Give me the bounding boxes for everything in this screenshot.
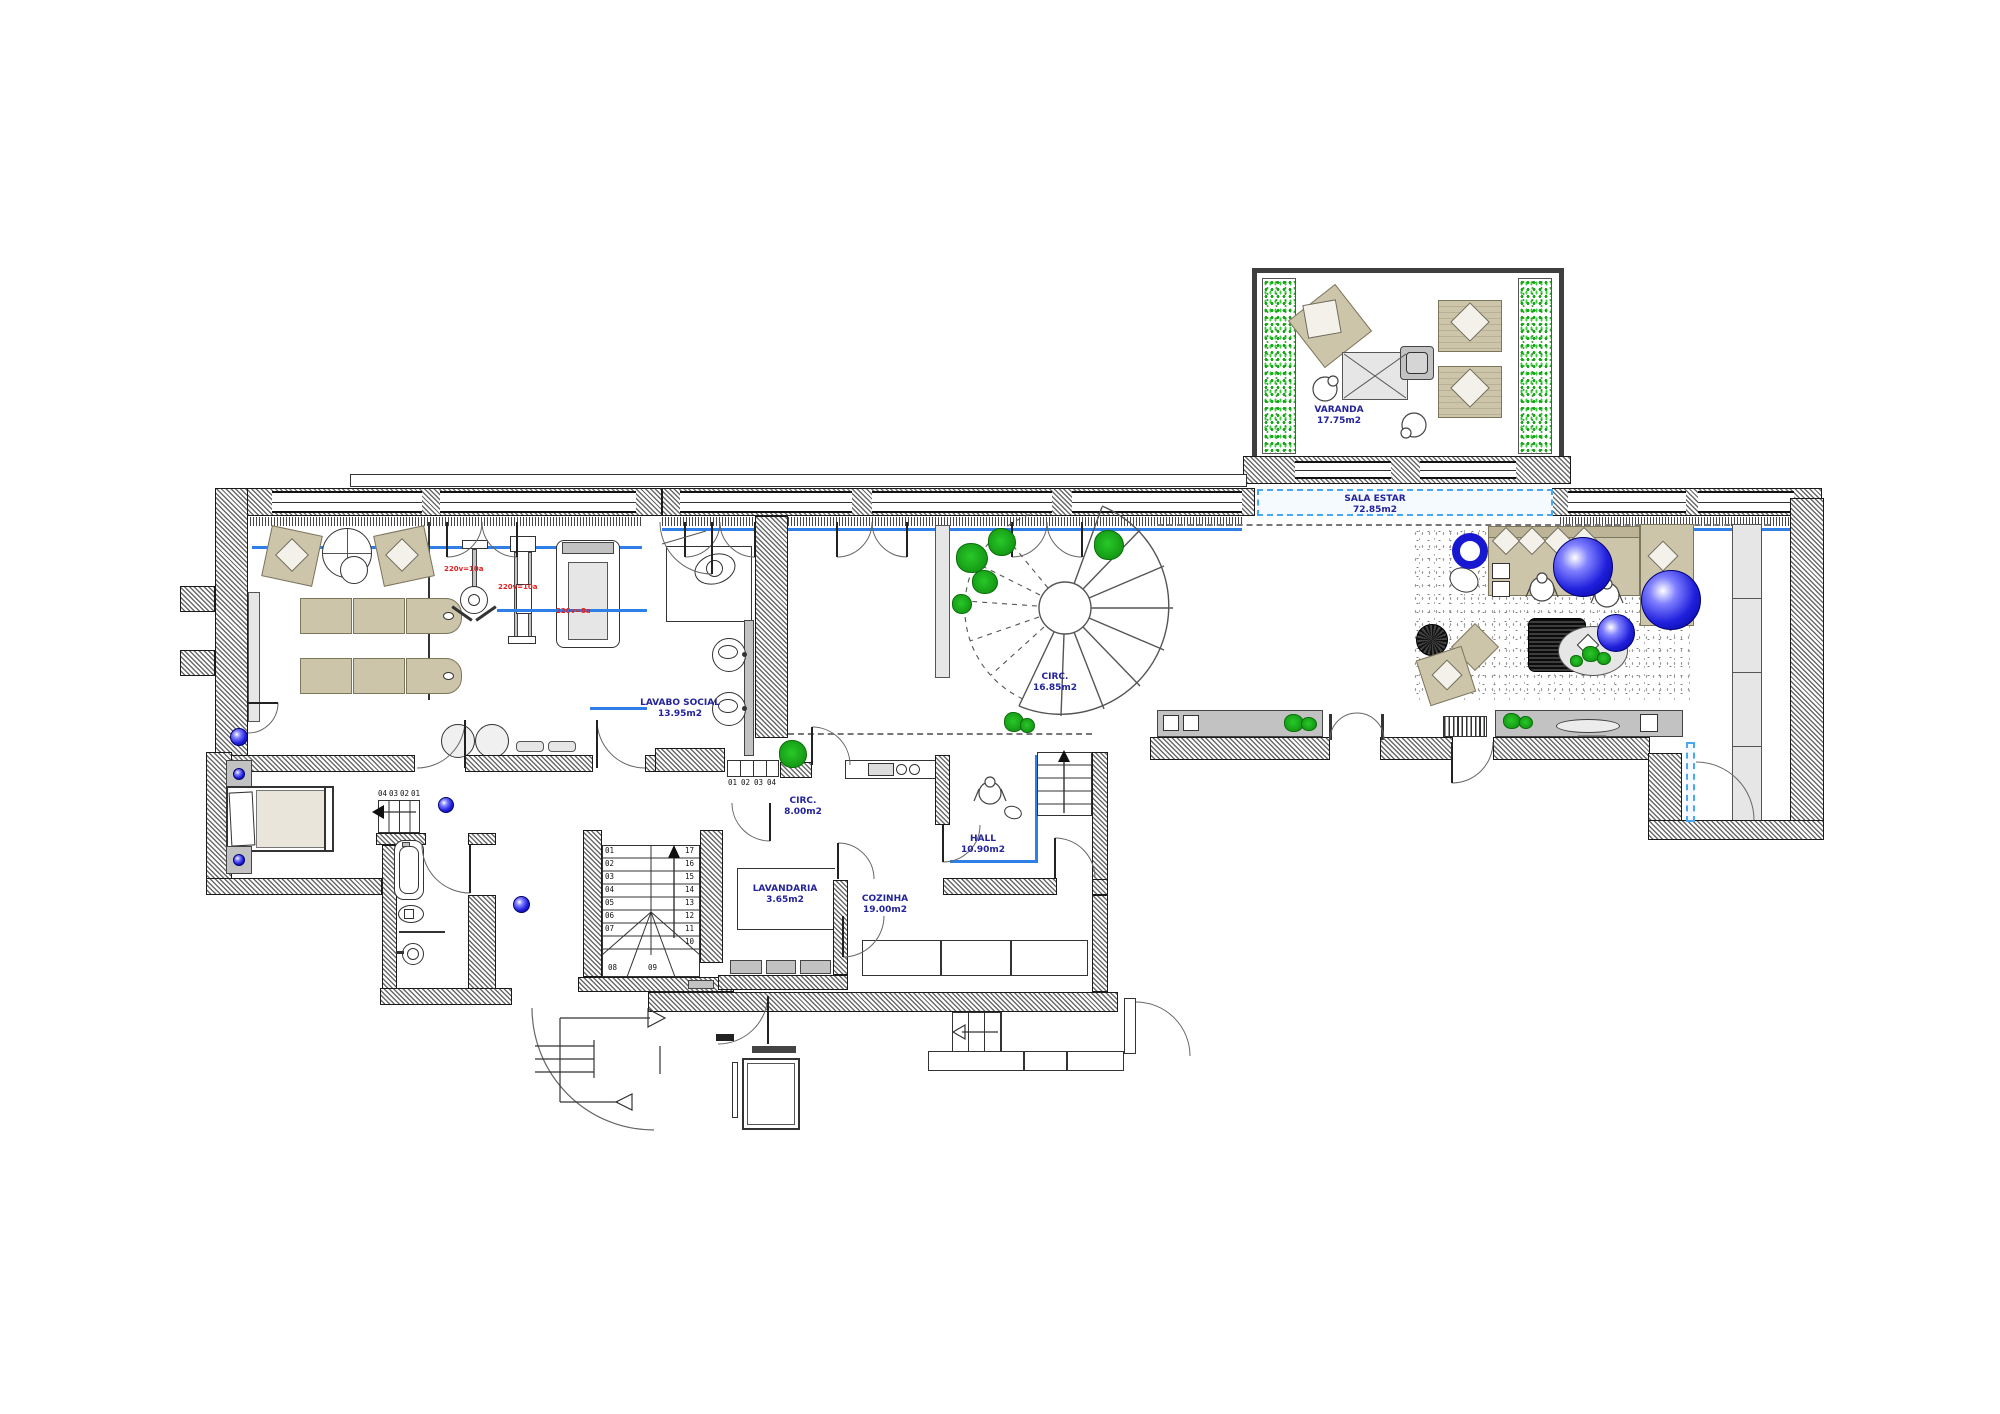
lavabo-area: 13.95m2 — [630, 709, 730, 720]
step-num: 03 — [389, 790, 398, 798]
stair-num: 02 — [605, 860, 614, 868]
hall-area: 10.90m2 — [938, 845, 1028, 856]
cozinha-area: 19.00m2 — [840, 905, 930, 916]
gym-note-1: 220v=10a — [444, 566, 484, 573]
varanda-name: VARANDA — [1289, 405, 1389, 416]
circ-hall-area: 8.00m2 — [758, 807, 848, 818]
sala-estar-name: SALA ESTAR — [1330, 494, 1420, 505]
circ-hall-label: CIRC. 8.00m2 — [758, 796, 848, 819]
wheel-ring — [1452, 533, 1488, 569]
person-terrace-2 — [1401, 413, 1426, 438]
hall-label: HALL 10.90m2 — [938, 834, 1028, 857]
plant-floor-2 — [1020, 718, 1035, 733]
stair-num: 11 — [685, 925, 694, 933]
stair-num: 08 — [608, 964, 617, 972]
lavabo-label: LAVABO SOCIAL 13.95m2 — [630, 698, 730, 721]
person-terrace-1 — [1313, 376, 1338, 401]
lavandaria-area: 3.65m2 — [740, 895, 830, 906]
plant-spiral-2 — [988, 528, 1016, 556]
plant-spiral-1 — [956, 543, 988, 573]
step-num: 02 — [400, 790, 409, 798]
varanda-area: 17.75m2 — [1289, 416, 1389, 427]
step-num: 02 — [741, 779, 750, 787]
plant-spiral-5 — [1094, 530, 1124, 560]
gym-note-2: 220v=10a — [498, 584, 538, 591]
sala-estar-area: 72.85m2 — [1330, 505, 1420, 516]
linework-layer — [0, 0, 2000, 1414]
plant-tray-2 — [1597, 652, 1611, 665]
people-figures — [974, 376, 1623, 804]
floor-plan: VARANDA 17.75m2 SALA ESTAR 72.85m2 — [0, 0, 2000, 1414]
step-num: 04 — [767, 779, 776, 787]
step-num: 01 — [411, 790, 420, 798]
blue-sphere-c — [1597, 614, 1635, 652]
gym-note-3: 220v=8a — [556, 608, 591, 615]
stair-num: 05 — [605, 899, 614, 907]
step-num: 01 — [728, 779, 737, 787]
stair-num: 15 — [685, 873, 694, 881]
plant-spiral-4 — [952, 594, 972, 614]
stair-num: 12 — [685, 912, 694, 920]
step-num: 04 — [378, 790, 387, 798]
hall-stair-treads — [1037, 750, 1092, 813]
blue-sphere-wing-2 — [513, 896, 530, 913]
floor-plan-canvas: { "rooms": { "varanda": {"name": "VARAND… — [0, 0, 2000, 1414]
plant-sideboard-2b — [1519, 716, 1533, 729]
circ-spiral-name: CIRC. — [1010, 672, 1100, 683]
plant-spiral-3 — [972, 570, 998, 594]
bedroom-steps-arrow — [372, 805, 416, 819]
porch-arrow — [953, 1025, 998, 1039]
nightstand-1-sphere — [233, 768, 245, 780]
stair-num: 04 — [605, 886, 614, 894]
entrance-arrows — [532, 1008, 665, 1130]
blue-sphere-a — [1553, 537, 1613, 597]
hall-name: HALL — [938, 834, 1028, 845]
sala-estar-label: SALA ESTAR 72.85m2 — [1330, 494, 1420, 517]
varanda-label: VARANDA 17.75m2 — [1289, 405, 1389, 428]
step-num: 03 — [754, 779, 763, 787]
person-sofa-1 — [1526, 573, 1558, 601]
plant-sideboard-1b — [1301, 717, 1317, 731]
person-hall — [974, 777, 1006, 804]
stair-num: 07 — [605, 925, 614, 933]
lavabo-name: LAVABO SOCIAL — [630, 698, 730, 709]
circ-spiral-label: CIRC. 16.85m2 — [1010, 672, 1100, 695]
stair-num: 09 — [648, 964, 657, 972]
plant-tray-3 — [1570, 655, 1583, 667]
blue-sphere-b — [1641, 570, 1701, 630]
cozinha-label: COZINHA 19.00m2 — [840, 894, 930, 917]
stair-num: 16 — [685, 860, 694, 868]
stair-num: 14 — [685, 886, 694, 894]
circ-hall-name: CIRC. — [758, 796, 848, 807]
blue-sphere-wing-1 — [438, 797, 454, 813]
stair-num: 06 — [605, 912, 614, 920]
stair-num: 13 — [685, 899, 694, 907]
plant-lavabo — [779, 740, 807, 768]
cozinha-name: COZINHA — [840, 894, 930, 905]
lavandaria-name: LAVANDARIA — [740, 884, 830, 895]
lavandaria-label: LAVANDARIA 3.65m2 — [740, 884, 830, 907]
stair-num: 01 — [605, 847, 614, 855]
blue-sphere-lounge — [230, 728, 248, 746]
circ-spiral-area: 16.85m2 — [1010, 683, 1100, 694]
stair-num: 17 — [685, 847, 694, 855]
nightstand-2-sphere — [233, 854, 245, 866]
stair-num: 10 — [685, 938, 694, 946]
stair-num: 03 — [605, 873, 614, 881]
